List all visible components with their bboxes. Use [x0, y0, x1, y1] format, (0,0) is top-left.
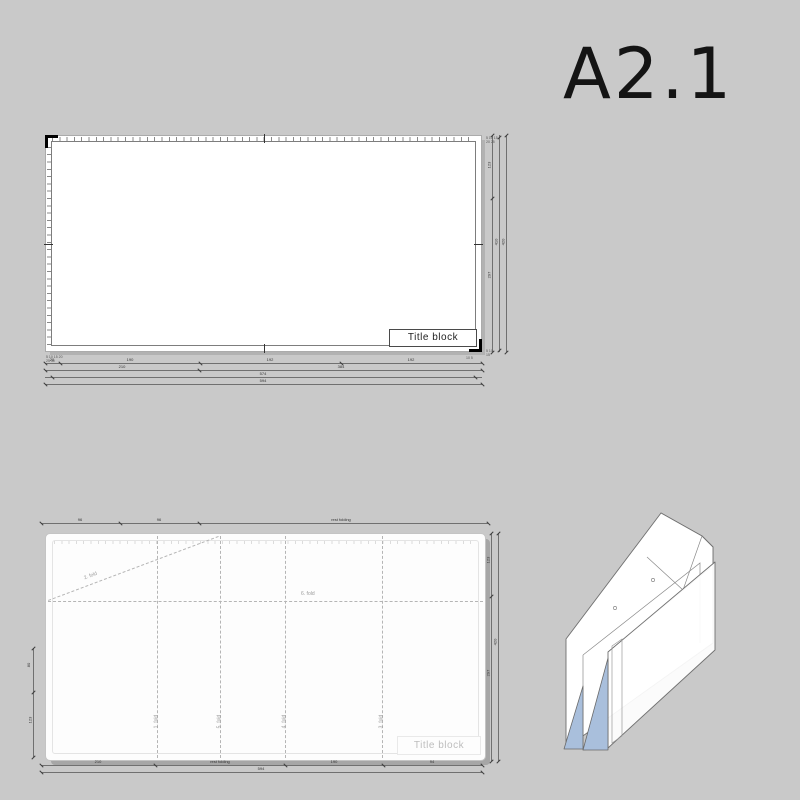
dim-label: 594: [258, 767, 265, 771]
dim-tick: [197, 521, 201, 525]
dim-tick: [496, 759, 500, 763]
fold-label-vertical-1: 1. fold: [155, 709, 160, 735]
dim-line: [41, 772, 482, 773]
dim-label: 574: [260, 372, 267, 376]
dim-line: [506, 135, 507, 352]
fold-title-block-label: Title block: [414, 740, 464, 751]
dim-tick: [50, 375, 54, 379]
fold-frame-ticks-top: [54, 541, 477, 544]
iso-folded-view: [550, 500, 780, 770]
dim-label: 192: [267, 358, 274, 362]
dim-label: 420: [501, 239, 505, 246]
dim-label: 297: [487, 272, 491, 279]
dim-label: rest folding: [331, 518, 351, 522]
dim-label: 94: [430, 760, 434, 764]
fold-label-vertical-4: 3. fold: [380, 709, 385, 735]
sheet-drawing: Title block: [45, 135, 482, 352]
dim-line: [498, 533, 499, 761]
micro-label: 15: [486, 354, 490, 358]
fold-label-vertical-3: 4. fold: [283, 709, 288, 735]
center-mark-left: [44, 244, 53, 245]
dim-tick: [58, 361, 62, 365]
title-block: Title block: [389, 329, 477, 347]
dim-label: 123: [486, 557, 490, 564]
dim-label: 190: [331, 760, 338, 764]
dim-tick: [480, 770, 484, 774]
dim-label: rest folding: [210, 760, 230, 764]
dim-tick: [504, 350, 508, 354]
fold-label-vertical-2: 5. fold: [218, 709, 223, 735]
dim-tick: [43, 382, 47, 386]
fold-chain-top: 96 96 rest folding: [41, 523, 488, 524]
dim-chain-bottom-1: 20 190 192 192: [45, 363, 482, 364]
micro-label: 25 30: [46, 360, 55, 364]
dim-tick: [118, 521, 122, 525]
center-mark-top: [264, 134, 265, 143]
fold-frame: [52, 540, 479, 754]
dim-tick: [489, 759, 493, 763]
dim-tick: [480, 382, 484, 386]
dim-tick: [197, 368, 201, 372]
dim-tick: [381, 763, 385, 767]
dim-tick: [480, 763, 484, 767]
dim-label: 210: [95, 760, 102, 764]
dim-tick: [486, 521, 490, 525]
dim-line: [45, 384, 482, 385]
micro-label: 10 5: [466, 357, 473, 361]
fold-chain-right-inner: 123 297: [491, 533, 492, 761]
fold-line-horizontal: [48, 601, 483, 602]
dim-label: 210: [119, 365, 126, 369]
dim-chain-bottom-4: 594: [45, 384, 482, 385]
dim-label: 420: [493, 639, 497, 646]
fold-chain-bottom-2: 594: [41, 772, 482, 773]
fold-chain-right-outer: 420: [498, 533, 499, 761]
dim-tick: [43, 368, 47, 372]
dim-label: 297: [486, 670, 490, 677]
corner-mark-br: [479, 339, 482, 352]
dim-label: 123: [487, 162, 491, 169]
fold-label-horizontal: 6. fold: [301, 592, 315, 597]
fold-chain-left: 80 123: [33, 648, 34, 757]
dim-label: 123: [28, 717, 32, 724]
dim-label: 96: [157, 518, 161, 522]
dim-tick: [480, 361, 484, 365]
dim-tick: [153, 763, 157, 767]
title-block-label: Title block: [408, 332, 458, 343]
format-label: A2.1: [563, 33, 734, 115]
dim-label: 192: [408, 358, 415, 362]
fold-title-block: Title block: [397, 736, 481, 755]
dim-tick: [31, 755, 35, 759]
drawing-frame: [51, 141, 476, 346]
dim-label: 410: [494, 239, 498, 246]
dim-line: [41, 523, 488, 524]
dim-tick: [39, 521, 43, 525]
center-mark-bottom: [264, 344, 265, 353]
micro-label: 20 25: [486, 141, 495, 145]
dim-line: [33, 648, 34, 757]
dim-label: 80: [27, 663, 31, 667]
dim-line: [491, 533, 492, 761]
corner-mark-tl: [45, 135, 48, 148]
dim-tick: [39, 763, 43, 767]
dim-line: [45, 363, 482, 364]
dim-tick: [198, 361, 202, 365]
dim-label: 190: [127, 358, 134, 362]
dim-tick: [480, 368, 484, 372]
dim-label: 96: [78, 518, 82, 522]
dim-chain-right-3: 420: [506, 135, 507, 352]
dim-label: 594: [260, 379, 267, 383]
dim-tick: [283, 763, 287, 767]
dim-tick: [39, 770, 43, 774]
fold-diagram-sheet: 2. fold 6. fold 1. fold 5. fold 4. fold …: [45, 533, 486, 761]
dim-tick: [473, 375, 477, 379]
dim-label: 384: [338, 365, 345, 369]
center-mark-right: [474, 244, 483, 245]
